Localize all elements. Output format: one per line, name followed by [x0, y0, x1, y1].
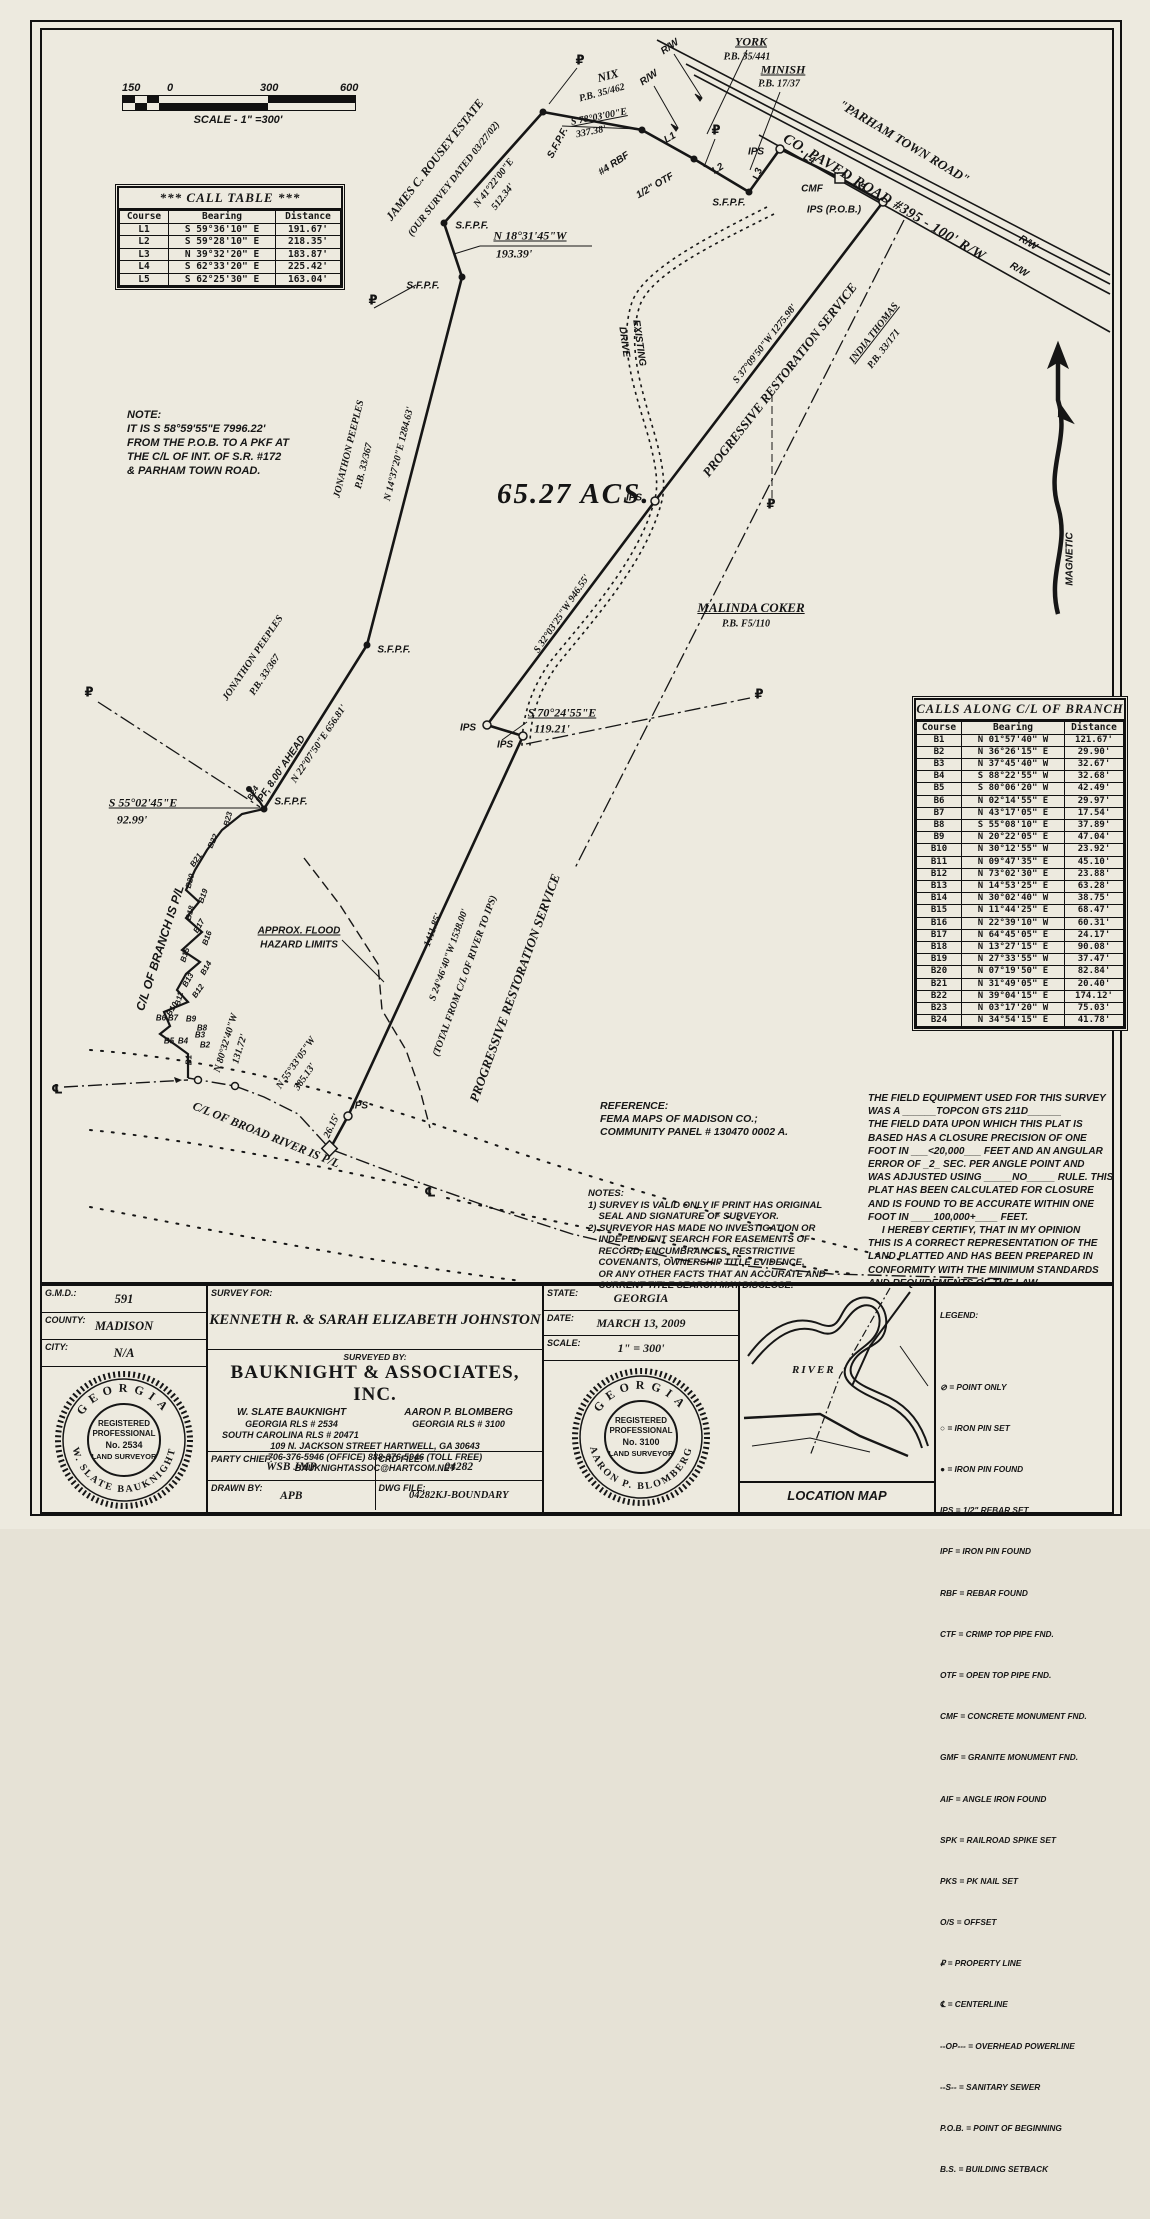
seal-line2: PROFESSIONAL — [92, 1429, 155, 1438]
survey-for-label: SURVEY FOR: — [211, 1288, 272, 1298]
scale-label: SCALE: — [547, 1338, 581, 1348]
surveyor-seal-2: GEORGIA AARON P. BLOMBERG REGISTERED PRO… — [544, 1361, 738, 1512]
plat-annotation: B13 — [180, 971, 195, 988]
legend-item: IPF = IRON PIN FOUND — [940, 1546, 1108, 1556]
gmd-label: G.M.D.: — [45, 1288, 77, 1298]
party-chief-label: PARTY CHIEF: — [211, 1454, 273, 1464]
seal-state: GEORGIA — [591, 1377, 692, 1414]
plat-annotation: S 55°02'45"E — [109, 796, 177, 811]
date-row: DATE: MARCH 13, 2009 — [544, 1311, 738, 1336]
party-chief-row: PARTY CHIEF: WSB JMP CRD FILE: 04282 — [208, 1452, 542, 1481]
plat-annotation: IPS — [352, 1101, 368, 1112]
location-map: RIVER LOCATION MAP — [740, 1286, 934, 1512]
drawn-by-cell: DRAWN BY: APB — [208, 1481, 376, 1510]
plat-annotation: S.F.P.F. — [712, 198, 745, 209]
legend-panel: LEGEND: ⊘ = POINT ONLY ○ = IRON PIN SET … — [936, 1286, 1112, 1512]
plat-annotation: IPS — [748, 147, 764, 158]
plat-annotation: S.F.P.F. — [377, 645, 410, 656]
plat-annotation: L2 — [710, 161, 726, 177]
scale-row: SCALE: 1" = 300' — [544, 1336, 738, 1361]
plat-annotation: 119.21' — [534, 722, 570, 737]
plat-annotation: B2 — [200, 1041, 210, 1050]
plat-area: 150 0 300 600 SCALE - 1" =300' *** CALL … — [40, 28, 1114, 1284]
seal-graphic: GEORGIA W. SLATE BAUKNIGHT REGISTERED PR… — [53, 1369, 195, 1511]
state-row: STATE: GEORGIA — [544, 1286, 738, 1311]
plat-annotation: HAZARD LIMITS — [260, 940, 338, 951]
plat-annotation: IPS (P.O.B.) — [807, 205, 861, 216]
plat-annotation: #4 RBF — [597, 150, 632, 178]
seal-line3: LAND SURVEYOR — [92, 1452, 157, 1461]
plat-annotation: R/W — [1017, 233, 1039, 252]
plat-annotation: ℄ — [424, 1186, 436, 1201]
plat-annotation: MALINDA COKER — [697, 600, 804, 616]
seal-line1: REGISTERED — [615, 1416, 667, 1425]
legend-item: SPK = RAILROAD SPIKE SET — [940, 1835, 1108, 1845]
legend-item: OTF = OPEN TOP PIPE FND. — [940, 1670, 1108, 1680]
crd-file-label: CRD FILE: — [379, 1454, 424, 1464]
dwg-file-label: DWG FILE: — [379, 1483, 426, 1493]
plat-annotation: ℄ — [51, 1083, 63, 1098]
plat-annotation: B7 — [168, 1014, 178, 1023]
plat-annotation: B18 — [184, 905, 196, 922]
plat-annotation: PROGRESSIVE RESTORATION SERVICE — [466, 872, 564, 1104]
date-label: DATE: — [547, 1313, 574, 1323]
plat-annotation: 1411.85' — [422, 912, 444, 948]
surveyed-by-block: SURVEYED BY: BAUKNIGHT & ASSOCIATES, INC… — [208, 1350, 542, 1452]
plat-annotation: DRIVE — [616, 326, 631, 358]
plat-annotation: MAGNETIC — [1065, 532, 1076, 585]
plat-annotation: B22 — [206, 832, 220, 849]
plat-annotation: S.F.P.F. — [545, 126, 570, 160]
plat-annotation: S 32°03'25"W 946.55' — [532, 573, 593, 655]
plat-annotation: YORK — [735, 35, 767, 50]
plat-annotation: L1 — [662, 130, 678, 145]
party-chief-cell: PARTY CHIEF: WSB JMP — [208, 1452, 376, 1480]
drawn-by-label: DRAWN BY: — [211, 1483, 263, 1493]
plat-annotation: S 70°24'55"E — [528, 706, 596, 721]
location-map-panel: RIVER LOCATION MAP — [740, 1286, 936, 1512]
plat-annotation: MINISH — [761, 63, 806, 78]
legend-item: RBF = REBAR FOUND — [940, 1588, 1108, 1598]
plat-annotation: ₽ — [84, 686, 93, 701]
plat-annotation: CO. PAVED ROAD #395 - 100' R/W — [780, 131, 989, 266]
plat-annotation: B12 — [190, 982, 206, 999]
title-block-center: SURVEY FOR: KENNETH R. & SARAH ELIZABETH… — [208, 1286, 544, 1512]
seal-line3: LAND SURVEYOR — [609, 1449, 674, 1458]
legend-item: PKS = PK NAIL SET — [940, 1876, 1108, 1886]
legend-items: ⊘ = POINT ONLY ○ = IRON PIN SET ● = IRON… — [940, 1340, 1108, 2195]
plat-annotation: B14 — [198, 959, 213, 976]
plat-annotation: ₽ — [754, 688, 763, 703]
plat-annotation: R/W — [638, 68, 660, 88]
plat-labels: R/WR/WYORKP.B. 35/441MINISHP.B. 17/37NIX… — [42, 30, 1112, 1282]
plat-annotation: B4 — [178, 1037, 188, 1046]
county-label: COUNTY: — [45, 1315, 86, 1325]
surveyor-seal-1: GEORGIA W. SLATE BAUKNIGHT REGISTERED PR… — [42, 1367, 206, 1512]
plat-annotation: B23 — [222, 811, 234, 828]
svg-text:GEORGIA: GEORGIA — [74, 1380, 175, 1417]
surveyed-by-label: SURVEYED BY: — [208, 1350, 542, 1362]
legend-item: AIF = ANGLE IRON FOUND — [940, 1794, 1108, 1804]
plat-annotation: S.F.P.F. — [406, 281, 439, 292]
legend-item: GMF = GRANITE MONUMENT FND. — [940, 1752, 1108, 1762]
plat-annotation: R/W — [659, 37, 681, 57]
county-row: COUNTY: MADISON — [42, 1313, 206, 1340]
surveyor-name-2: AARON P. BLOMBERG — [404, 1407, 513, 1418]
plat-annotation: B6 — [156, 1014, 166, 1023]
svg-text:GEORGIA: GEORGIA — [591, 1377, 692, 1414]
plat-annotation: B1 — [185, 1055, 194, 1065]
plat-annotation: ₽ — [368, 294, 377, 309]
plat-sheet: 150 0 300 600 SCALE - 1" =300' *** CALL … — [0, 0, 1150, 1529]
location-map-caption: LOCATION MAP — [740, 1481, 934, 1512]
legend-item: P.O.B. = POINT OF BEGINNING — [940, 2123, 1108, 2133]
plat-annotation: IPS — [626, 493, 642, 504]
plat-annotation: IPS — [497, 740, 513, 751]
survey-for-row: SURVEY FOR: KENNETH R. & SARAH ELIZABETH… — [208, 1286, 542, 1350]
seal-number: No. 2534 — [105, 1440, 142, 1450]
plat-annotation: P.B. 35/441 — [724, 52, 771, 63]
plat-annotation: B9 — [186, 1015, 196, 1024]
plat-annotation: C/L OF BROAD RIVER IS P/L — [190, 1099, 341, 1172]
legend-item: O/S = OFFSET — [940, 1917, 1108, 1927]
plat-annotation: P.B. 33/367 — [353, 442, 375, 490]
plat-annotation: B15 — [178, 947, 191, 964]
crd-file-cell: CRD FILE: 04282 — [376, 1452, 543, 1480]
rls-3: SOUTH CAROLINA RLS # 20471 — [208, 1430, 542, 1441]
plat-annotation: ₽ — [711, 124, 720, 139]
legend-item: ⊘ = POINT ONLY — [940, 1382, 1108, 1392]
plat-annotation: P.B. 17/37 — [758, 79, 800, 90]
plat-annotation: 193.39' — [496, 247, 532, 262]
legend-item: IPS = 1/2" REBAR SET — [940, 1505, 1108, 1515]
plat-annotation: P.B. F5/110 — [722, 619, 770, 630]
title-block-left: G.M.D.: 591 COUNTY: MADISON CITY: N/A — [42, 1286, 208, 1512]
plat-annotation: S.F.P.F. — [455, 221, 488, 232]
firm-address: 109 N. JACKSON STREET HARTWELL, GA 30643 — [208, 1441, 542, 1452]
plat-annotation: 92.99' — [117, 813, 147, 828]
plat-annotation: B3 — [195, 1031, 205, 1040]
dwg-file-cell: DWG FILE: 04282KJ-BOUNDARY — [376, 1481, 543, 1510]
legend-item: B.S. = BUILDING SETBACK — [940, 2164, 1108, 2174]
surveyor-name-1: W. SLATE BAUKNIGHT — [237, 1407, 346, 1418]
plat-annotation: N 18°31'45"W — [493, 229, 566, 244]
title-block-state-col: STATE: GEORGIA DATE: MARCH 13, 2009 SCAL… — [544, 1286, 740, 1512]
rls-1: GEORGIA RLS # 2534 — [245, 1419, 338, 1430]
plat-annotation: EXISTING — [630, 319, 647, 367]
plat-annotation: PROGRESSIVE RESTORATION SERVICE — [699, 280, 860, 480]
plat-annotation: 1/2" OTF — [634, 171, 675, 201]
legend-title: LEGEND: — [940, 1310, 1108, 1320]
legend-item: --OP--- = OVERHEAD POWERLINE — [940, 2041, 1108, 2051]
plat-annotation: B5 — [164, 1037, 174, 1046]
seal-state: GEORGIA — [74, 1380, 175, 1417]
plat-annotation: R/W — [1008, 260, 1030, 279]
legend-item: ○ = IRON PIN SET — [940, 1423, 1108, 1433]
plat-annotation: B16 — [200, 930, 213, 947]
legend-item: ℄ = CENTERLINE — [940, 1999, 1108, 2009]
seal-line1: REGISTERED — [98, 1419, 150, 1428]
plat-annotation: B19 — [196, 888, 209, 905]
plat-annotation: ₽ — [575, 54, 584, 69]
seal-graphic: GEORGIA AARON P. BLOMBERG REGISTERED PRO… — [570, 1366, 712, 1508]
plat-annotation: B21 — [188, 851, 204, 868]
firm-name: BAUKNIGHT & ASSOCIATES, INC. — [208, 1362, 542, 1406]
seal-number: No. 3100 — [622, 1437, 659, 1447]
gmd-row: G.M.D.: 591 — [42, 1286, 206, 1313]
location-map-graphic — [740, 1286, 936, 1484]
location-map-river-label: RIVER — [792, 1364, 836, 1376]
legend-item: CTF = CRIMP TOP PIPE FND. — [940, 1629, 1108, 1639]
drawn-by-row: DRAWN BY: APB DWG FILE: 04282KJ-BOUNDARY — [208, 1481, 542, 1510]
plat-annotation: APPROX. FLOOD — [258, 926, 341, 937]
city-label: CITY: — [45, 1342, 68, 1352]
plat-annotation: N 14°37'20"E 1284.63' — [382, 406, 416, 502]
city-row: CITY: N/A — [42, 1340, 206, 1367]
legend-item: ● = IRON PIN FOUND — [940, 1464, 1108, 1474]
plat-annotation: S.F.P.F. — [274, 797, 307, 808]
legend-item: ₽ = PROPERTY LINE — [940, 1958, 1108, 1968]
title-block: G.M.D.: 591 COUNTY: MADISON CITY: N/A — [40, 1284, 1114, 1514]
plat-annotation: IPS — [460, 723, 476, 734]
legend-item: CMF = CONCRETE MONUMENT FND. — [940, 1711, 1108, 1721]
legend-item: --S-- = SANITARY SEWER — [940, 2082, 1108, 2092]
plat-annotation: 26.15' — [322, 1112, 343, 1140]
rls-2: GEORGIA RLS # 3100 — [412, 1419, 505, 1430]
plat-annotation: CMF — [801, 184, 823, 195]
seal-line2: PROFESSIONAL — [609, 1426, 672, 1435]
plat-annotation: L3 — [751, 167, 765, 181]
plat-annotation: ₽ — [766, 498, 775, 513]
plat-annotation: B20 — [184, 873, 196, 890]
state-label: STATE: — [547, 1288, 578, 1298]
